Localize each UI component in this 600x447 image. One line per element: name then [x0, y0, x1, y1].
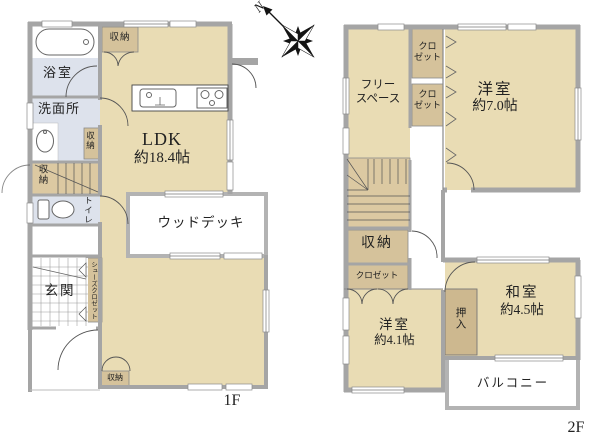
- stairs-2f-area: [346, 158, 410, 228]
- room-label-western41: 洋室 約4.1帖: [346, 317, 443, 348]
- compass-icon: N: [250, 0, 331, 74]
- north-label: N: [250, 0, 268, 16]
- bathtub-icon: [36, 29, 94, 55]
- kitchen-counter: [132, 85, 228, 111]
- closet1-line1: クロ: [411, 41, 444, 52]
- toilet-icon: [38, 200, 74, 219]
- floor2-caption: 2F: [556, 419, 596, 438]
- western41-size: 約4.1帖: [346, 333, 443, 348]
- room-label-closet-lower: クロゼット: [346, 270, 408, 280]
- room-label-washroom: 洗面所: [28, 101, 90, 116]
- room-label-storage-mid: 収納: [86, 131, 95, 161]
- western41-name: 洋室: [346, 317, 443, 333]
- room-label-storage-2f: 収納: [347, 236, 407, 253]
- room-label-bath: 浴室: [30, 65, 86, 80]
- floor1-caption: 1F: [212, 392, 252, 411]
- room-label-entrance: 玄関: [34, 283, 86, 299]
- room-label-storage-stairs: 収納: [36, 164, 46, 196]
- washitsu-size: 約4.5帖: [463, 302, 581, 318]
- room-label-ldk-size: 約18.4帖: [102, 150, 222, 168]
- room-label-wood-deck: ウッドデッキ: [134, 215, 268, 231]
- stove-icon: [197, 88, 227, 108]
- closet1-line2: ゼット: [411, 52, 444, 63]
- washbasin-icon: [37, 130, 54, 152]
- free-space-line2: スペース: [346, 93, 410, 107]
- floorplan-page: N 浴室 収納 洗面所 収納 収納 トイレ LDK 約18.4帖 ウッドデッキ …: [0, 0, 600, 447]
- free-space-line1: フリー: [346, 79, 410, 93]
- western7-size: 約7.0帖: [430, 99, 560, 116]
- room-label-washitsu: 和室 約4.5帖: [463, 285, 581, 318]
- room-label-storage-top: 収納: [102, 33, 138, 44]
- room-label-western7: 洋室 約7.0帖: [430, 81, 560, 116]
- kitchen-sink-icon: [140, 89, 176, 107]
- room-label-free-space: フリー スペース: [346, 79, 410, 106]
- room-label-shoe-closet: シューズクロゼット: [89, 261, 96, 321]
- room-label-storage-bottom: 収納: [100, 373, 130, 382]
- room-label-ldk-name: LDK: [102, 129, 222, 150]
- room-label-balcony: バルコニー: [453, 376, 573, 391]
- western7-name: 洋室: [430, 81, 560, 99]
- room-label-toilet: トイレ: [84, 196, 93, 226]
- room-label-closet1: クロ ゼット: [411, 41, 444, 62]
- washitsu-name: 和室: [463, 285, 581, 302]
